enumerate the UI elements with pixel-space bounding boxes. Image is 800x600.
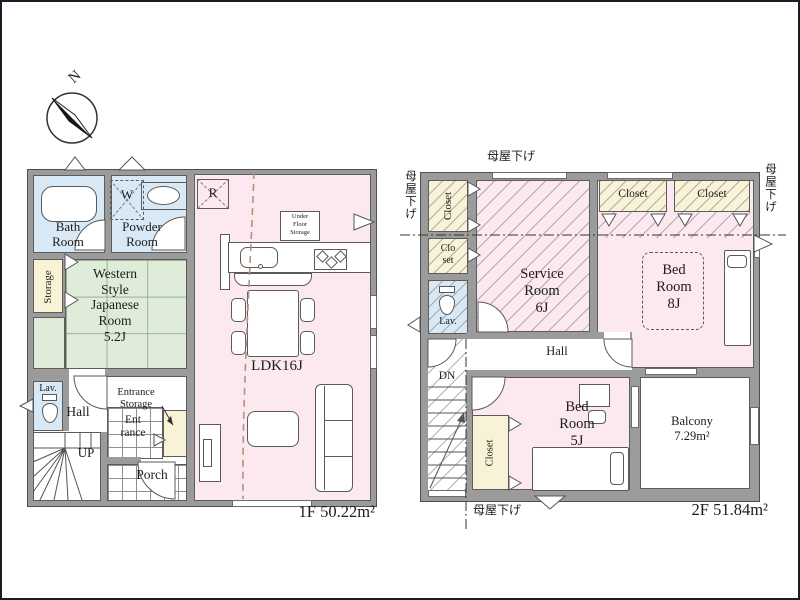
porch-label: Porch [122,467,182,483]
toilet-tank-icon [439,286,455,293]
hall-door-opening [69,369,105,377]
bathtub-icon [41,186,97,222]
counter-ledge [234,273,312,286]
window [370,335,377,369]
floor1-area-label: 1F 50.22m² [235,502,375,521]
bath-room-label: Bath Room [33,219,103,249]
bed8-door-opening [604,332,630,339]
lav-1f-label: Lav. [33,383,63,395]
hall-2f-label: Hall [532,344,582,359]
pillow-icon [610,452,624,485]
western-room-label: Western Style Japanese Room 5.2J [60,266,170,344]
roof-slope-hatch [597,212,754,238]
entrance-label: Ent rance [109,414,157,441]
balcony-label: Balcony 7.29m² [650,414,734,443]
sofa-icon [315,384,353,492]
dining-table-icon [247,290,299,357]
dining-chair-icon [300,331,315,355]
room-stairs-2f [428,339,466,490]
dining-chair-icon [231,331,246,355]
under-floor-storage-label: Under Floor Storage [280,213,320,237]
powder-room-label: Powder Room [107,219,177,249]
washing-machine-label: W [110,187,144,202]
window [428,490,466,497]
lav-2f-label: Lav. [430,316,466,328]
dining-chair-icon [300,298,315,322]
storage-label: Storage [42,270,54,304]
compass-north-label: N [66,68,85,88]
window [492,172,567,179]
up-label: UP [70,445,102,460]
closet-a-label: Closet [599,188,667,201]
bedroom-5j-label: Bed Room 5J [546,399,608,449]
coffee-table-icon [247,411,299,447]
moya-sage-top-label: 母屋下げ [468,150,554,164]
room-stairs-1f [33,432,101,501]
sofa-cushion-line [324,420,352,421]
moya-sage-right-label: 母屋下げ [762,163,778,213]
window [370,295,377,329]
washbasin-icon [147,186,180,205]
service-room-label: Service Room 6J [496,266,588,316]
sofa-cushion-line [324,456,352,457]
down-label: DN [432,370,462,383]
toilet-tank-icon [42,394,57,401]
floorplan-canvas: N Bath Room Powder Room W Storage Wester… [0,0,800,600]
pillow-icon [727,255,747,268]
window [631,386,639,428]
ldk-label: LDK16J [227,358,327,375]
moya-sage-bottom-label: 母屋下げ [454,504,540,518]
sofa-back-line [324,386,325,490]
window [607,172,673,179]
wall [107,457,141,464]
room-entrance-storage [163,410,187,457]
refrigerator-label: R [197,185,229,200]
wall [466,370,632,377]
closet-bottom-label: Closet [485,440,496,467]
window [645,368,697,375]
moya-sage-left-label: 母屋下げ [402,170,418,220]
floor2-area-label: 2F 51.84m² [630,500,768,519]
hall-1f-label: Hall [58,404,98,420]
dining-chair-icon [231,298,246,322]
compass-icon [47,93,97,143]
closet-top-left-label: Closet [442,192,454,220]
closet-b-label: Closet [674,188,750,201]
window [750,407,759,445]
bedroom-8j-label: Bed Room 8J [643,262,705,312]
tv-icon [203,439,212,467]
entrance-storage-label: Entrance Storage [102,387,170,411]
faucet-icon [258,264,263,269]
window [754,238,760,258]
closet-small-label: Clo set [428,243,468,266]
